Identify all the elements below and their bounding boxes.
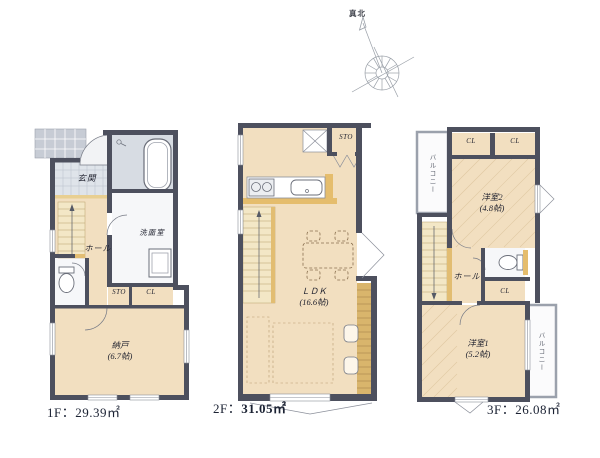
storage-room-label: 納戸 (6.7帖) [89, 340, 151, 362]
sto-label-1f: STO [107, 288, 131, 297]
compass-graphics [352, 23, 414, 97]
plan-2f: STO ＬＤＫ (16.6帖) 2F：31.05㎡ [203, 110, 388, 440]
cl-mid-label: CL [491, 287, 519, 296]
stairs-2f [243, 207, 275, 303]
washroom-label: 洗面室 [131, 228, 173, 237]
hall-label-3f: ホール [449, 272, 485, 282]
ldk-size: (16.6帖) [299, 297, 328, 307]
cl-left-label: CL [457, 137, 485, 146]
bedroom2-name: 洋室2 [481, 192, 502, 202]
ldk-label: ＬＤＫ (16.6帖) [284, 286, 344, 308]
caption-1f: 1F：29.39㎡ [47, 402, 121, 421]
plan-1f-graphics [33, 118, 193, 428]
storage-room-size: (6.7帖) [108, 351, 133, 361]
v-marker-3f [455, 402, 483, 413]
window-triangle-2f [362, 233, 384, 278]
washing-machine [149, 249, 171, 277]
floorplan-page: 真北 [0, 0, 600, 458]
north-label: 真北 [349, 8, 366, 19]
plan-2f-graphics [203, 110, 388, 440]
compass-rose [330, 5, 420, 105]
toilet-fixture [59, 267, 74, 293]
void-box [303, 130, 327, 152]
caption-2f: 2F：31.05㎡ [213, 398, 287, 417]
sto-label-2f: STO [331, 133, 361, 142]
storage-room-name: 納戸 [111, 340, 128, 350]
cl-right-label: CL [500, 137, 530, 146]
genkan-label: 玄関 [73, 173, 101, 184]
balcony-lower-label: バルコニー [535, 316, 545, 388]
hall-label-1f: ホール [81, 244, 115, 254]
ldk-name: ＬＤＫ [301, 286, 327, 296]
bedroom1-label: 洋室1 (5.2帖) [447, 338, 509, 360]
step-strip [55, 195, 107, 199]
stove [249, 179, 274, 196]
bedroom2-label: 洋室2 (4.8帖) [461, 192, 523, 214]
entrance-approach-tiles [35, 129, 86, 158]
cl-label-1f: CL [141, 288, 161, 297]
bedroom2-size: (4.8帖) [480, 203, 505, 213]
plan-3f: CL CL 洋室2 (4.8帖) ホール CL 洋室1 (5.2帖) バルコニー… [405, 110, 570, 440]
window-triangle-3f [540, 185, 554, 213]
balcony-upper-label: バルコニー [426, 142, 436, 206]
wood-deck [357, 283, 371, 394]
bedroom1-size: (5.2帖) [466, 349, 491, 359]
bathtub [144, 139, 171, 191]
plan-1f: 玄関 洗面室 ホール STO CL 納戸 (6.7帖) 1F：29.39㎡ [33, 118, 193, 428]
kitchen-sink [291, 180, 322, 195]
bedroom1-name: 洋室1 [467, 338, 488, 348]
caption-3f: 3F：26.08㎡ [487, 399, 561, 418]
